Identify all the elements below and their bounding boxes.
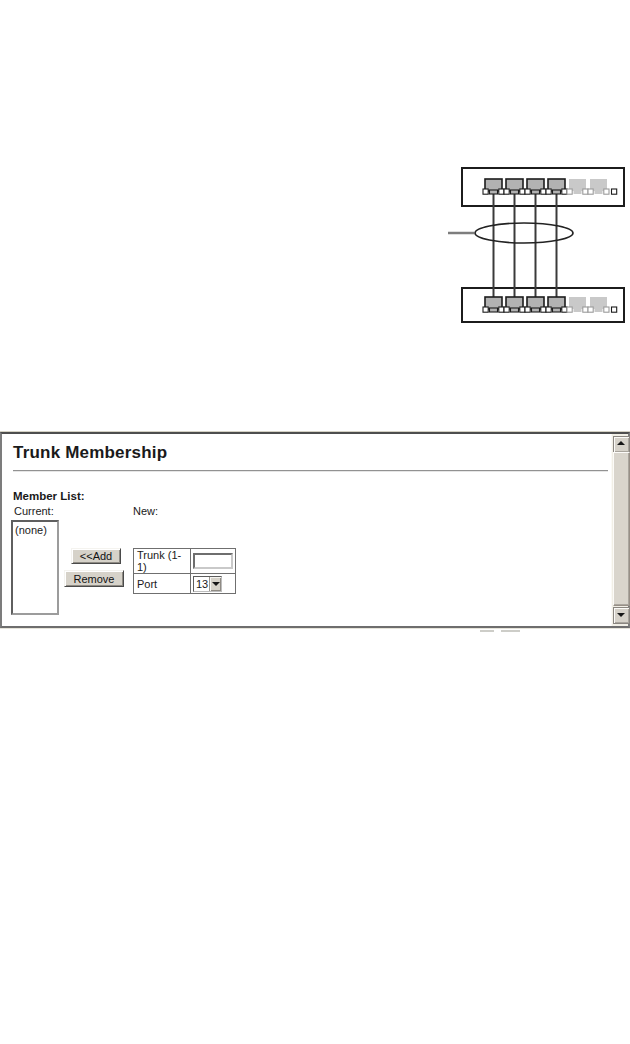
title-divider <box>13 470 608 472</box>
new-member-table: Trunk (1-1) Port 13 <box>133 548 236 594</box>
cropped-content-mark <box>501 630 520 632</box>
trunk-membership-panel: Trunk Membership Member List: Current: N… <box>0 432 630 628</box>
trunk-input[interactable] <box>193 553 233 569</box>
new-label: New: <box>133 505 158 517</box>
port-select-value: 13 <box>196 577 208 591</box>
scroll-up-icon <box>617 441 625 445</box>
chevron-down-icon <box>212 582 220 586</box>
page-title: Trunk Membership <box>13 443 167 463</box>
trunk-label: Trunk (1-1) <box>134 549 191 574</box>
trunk-diagram-content <box>448 168 624 322</box>
port-select-cell: 13 <box>191 574 236 594</box>
remove-button[interactable]: Remove <box>64 570 124 587</box>
scroll-up-button[interactable] <box>613 436 630 453</box>
port-select[interactable]: 13 <box>193 576 222 592</box>
panel-content: Trunk Membership Member List: Current: N… <box>2 434 628 626</box>
vertical-scrollbar[interactable] <box>611 434 628 626</box>
current-label: Current: <box>14 505 54 517</box>
trunk-row: Trunk (1-1) <box>134 549 236 574</box>
trunk-diagram-svg <box>445 158 629 330</box>
scrollbar-thumb[interactable] <box>613 452 630 606</box>
scroll-down-icon <box>617 613 625 617</box>
port-label: Port <box>134 574 191 594</box>
trunk-input-cell <box>191 549 236 574</box>
cropped-content-mark <box>480 630 494 632</box>
scroll-down-button[interactable] <box>613 607 630 624</box>
add-button[interactable]: <<Add <box>71 548 121 564</box>
current-members-listbox[interactable]: (none) <box>11 520 59 615</box>
port-row: Port 13 <box>134 574 236 594</box>
member-list-label: Member List: <box>13 490 85 502</box>
listbox-item-none[interactable]: (none) <box>13 522 57 536</box>
port-select-dropdown-button[interactable] <box>209 577 221 591</box>
